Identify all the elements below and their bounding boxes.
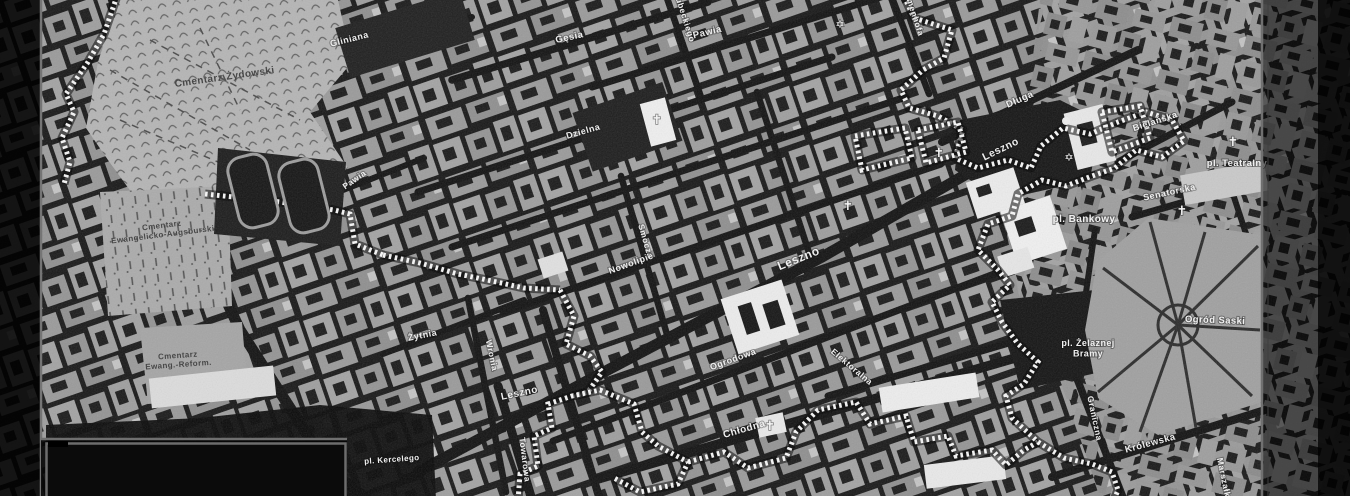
city-map-svg[interactable]: ✝✝✝✝✝✝✡✡ GlinianaGęsiaPawiaPawiaLubeckie…: [0, 0, 1350, 496]
inset-panel: [47, 444, 346, 496]
inset-corner-shade: [48, 441, 68, 447]
map-viewport[interactable]: ✝✝✝✝✝✝✡✡ GlinianaGęsiaPawiaPawiaLubeckie…: [0, 0, 1350, 496]
overlays: [0, 0, 1350, 496]
